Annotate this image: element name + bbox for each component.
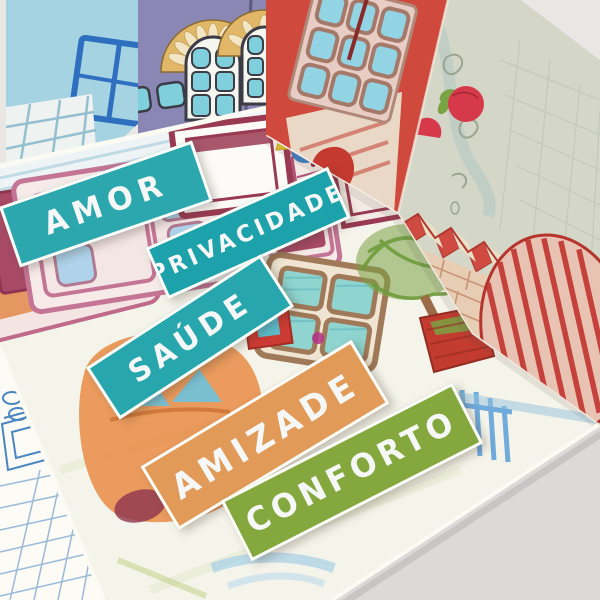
paper-craft-photo: AMOR PRIVACIDADE SAÚDE AMIZADE CONFORTO	[0, 0, 600, 600]
